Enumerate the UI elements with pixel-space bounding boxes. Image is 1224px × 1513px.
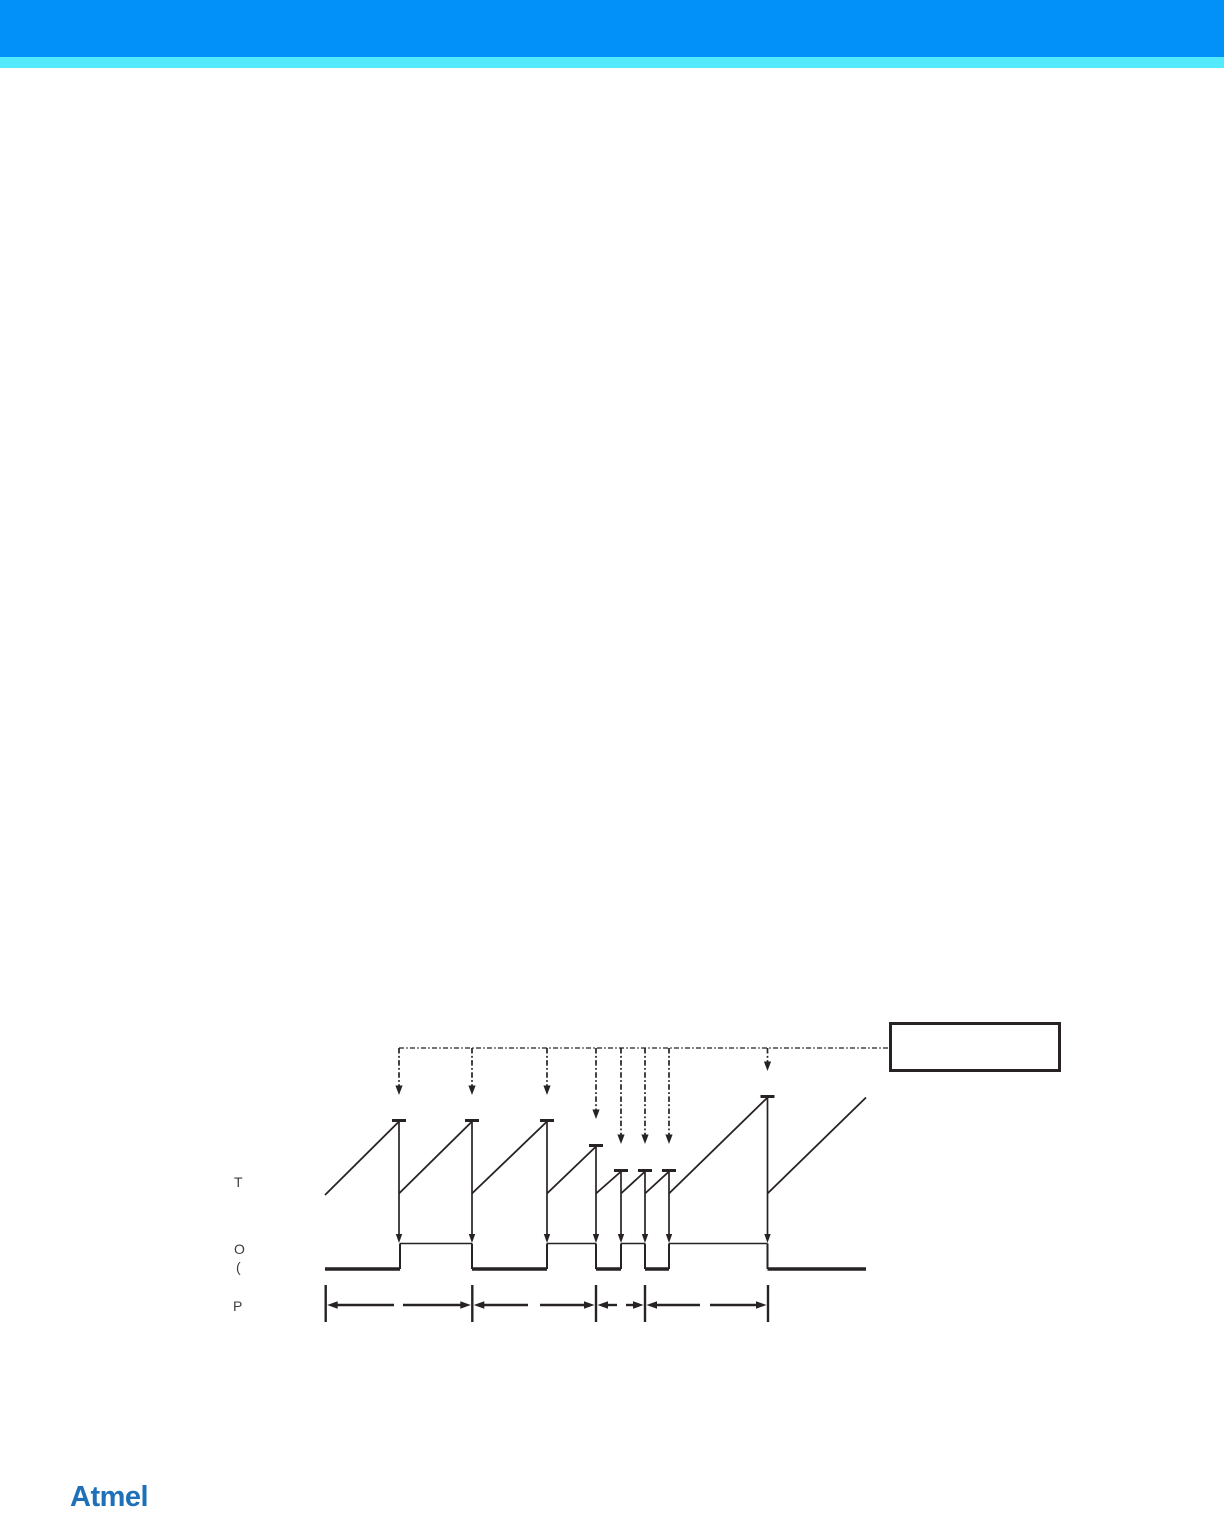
period-marks (326, 1285, 768, 1322)
atmel-logo: Atmel (70, 1482, 148, 1512)
counter-axis-label: T (234, 1174, 243, 1190)
legend-box (889, 1022, 1061, 1072)
ocnx-waveform (325, 1244, 866, 1270)
datasheet-page: T O ( P Atmel (0, 0, 1224, 1513)
period-axis-label: P (233, 1298, 242, 1314)
timer-timing-diagram (0, 0, 1224, 1513)
compare-drop-arrows (396, 1097, 771, 1244)
update-arrows (395, 1048, 771, 1144)
output-axis-label: O (234, 1241, 245, 1257)
paren-label: ( (236, 1259, 241, 1275)
